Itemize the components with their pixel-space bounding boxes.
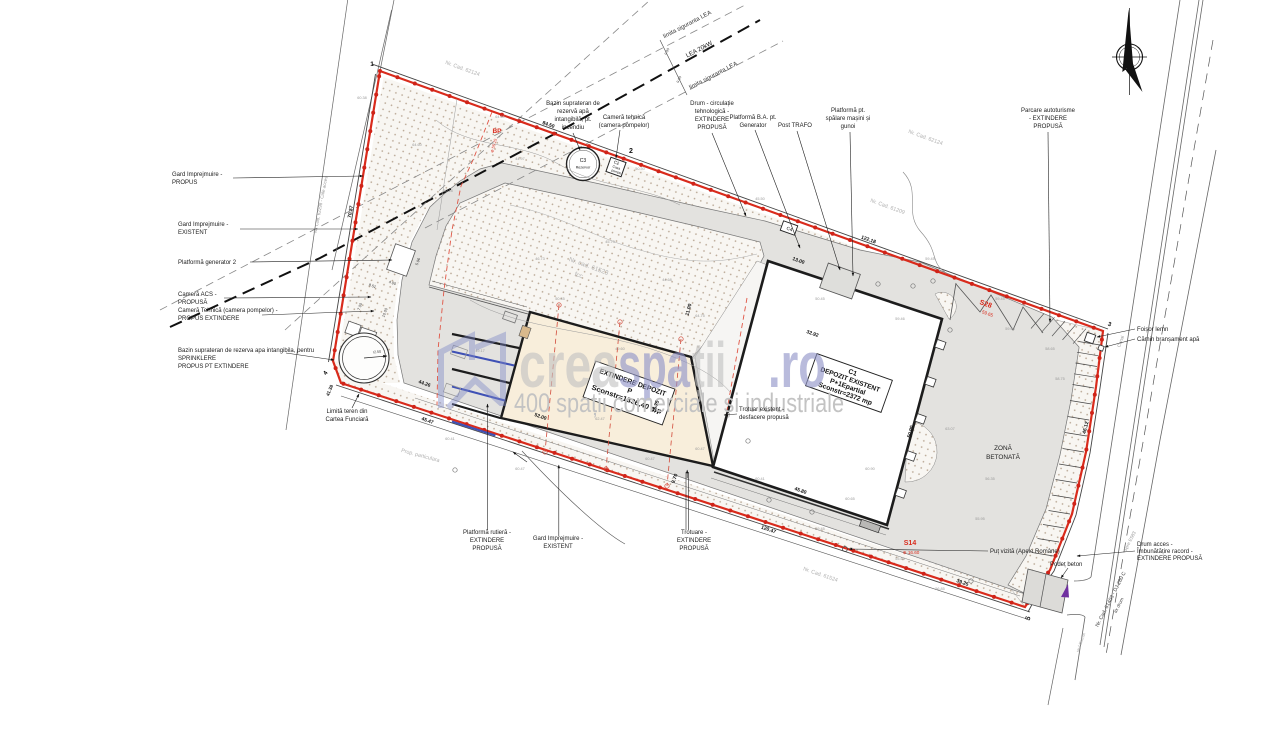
svg-text:Rezervor: Rezervor <box>576 166 591 170</box>
svg-text:60.90: 60.90 <box>865 467 875 471</box>
svg-text:44.97: 44.97 <box>515 157 525 161</box>
svg-text:58.65: 58.65 <box>1045 347 1055 351</box>
svg-text:Foișor lemn: Foișor lemn <box>1137 327 1168 333</box>
svg-text:Puț vizită (Apele Române): Puț vizită (Apele Române) <box>990 549 1060 555</box>
svg-text:BP: BP <box>492 128 502 135</box>
svg-text:Cartea Funciară: Cartea Funciară <box>325 417 369 423</box>
svg-text:incendiu: incendiu <box>562 125 584 131</box>
svg-text:PROPUSĂ: PROPUSĂ <box>697 124 726 131</box>
svg-text:45.50: 45.50 <box>755 197 765 201</box>
svg-text:50.18: 50.18 <box>443 189 453 193</box>
svg-text:intangibilă, pt.: intangibilă, pt. <box>554 117 591 123</box>
svg-text:64.60: 64.60 <box>495 115 505 119</box>
svg-text:ZONĂ: ZONĂ <box>994 443 1012 452</box>
svg-text:400 spații comerciale și indus: 400 spații comerciale și industriale <box>514 388 844 418</box>
svg-text:56.35: 56.35 <box>985 477 995 481</box>
svg-text:Drum acces -: Drum acces - <box>1137 542 1173 548</box>
svg-text:- EXTINDERE: - EXTINDERE <box>1029 116 1067 122</box>
svg-text:PROPUS PT EXTINDERE: PROPUS PT EXTINDERE <box>178 364 249 370</box>
svg-text:60.65: 60.65 <box>845 497 855 501</box>
svg-text:EXTINDERE PROPUSĂ: EXTINDERE PROPUSĂ <box>1137 555 1202 562</box>
svg-text:Platformă generator 2: Platformă generator 2 <box>178 260 237 266</box>
svg-text:S14: S14 <box>904 540 917 547</box>
svg-text:58.75: 58.75 <box>1055 377 1065 381</box>
svg-text:45.73: 45.73 <box>605 240 615 244</box>
svg-text:spălare mașini și: spălare mașini și <box>826 116 871 122</box>
svg-text:50.50: 50.50 <box>635 167 645 171</box>
svg-text:r2.50: r2.50 <box>373 350 382 355</box>
svg-text:60.41: 60.41 <box>445 437 455 441</box>
svg-text:55.65: 55.65 <box>895 557 905 561</box>
svg-text:60.47: 60.47 <box>695 447 705 451</box>
svg-text:63.07: 63.07 <box>945 427 955 431</box>
svg-text:C3: C3 <box>580 158 587 164</box>
svg-text:rezervă apă: rezervă apă <box>557 109 589 115</box>
svg-text:Platformă rutieră -: Platformă rutieră - <box>463 530 511 536</box>
svg-text:BETONATĂ: BETONATĂ <box>986 452 1021 461</box>
svg-text:60.47: 60.47 <box>515 467 525 471</box>
svg-text:Podeț beton: Podeț beton <box>1050 562 1082 568</box>
svg-text:desfacere propusă: desfacere propusă <box>739 415 789 421</box>
svg-text:Cameră tehnică: Cameră tehnică <box>603 115 646 121</box>
svg-text:EXTINDERE: EXTINDERE <box>695 117 729 123</box>
svg-text:Bazin suprateran de: Bazin suprateran de <box>546 101 600 107</box>
svg-text:Bazin suprateran de rezerva ap: Bazin suprateran de rezerva apa intangib… <box>178 348 314 354</box>
svg-text:SPRINKLERE: SPRINKLERE <box>178 356 216 362</box>
svg-text:Gard Imprejmuire -: Gard Imprejmuire - <box>172 172 222 178</box>
svg-text:60.47: 60.47 <box>645 457 655 461</box>
svg-text:EXTINDERE: EXTINDERE <box>470 538 504 544</box>
svg-text:PROPUSĂ: PROPUSĂ <box>679 545 708 552</box>
svg-text:Gard Imprejmuire -: Gard Imprejmuire - <box>533 536 583 542</box>
svg-text:Limită teren din: Limită teren din <box>326 409 367 415</box>
svg-text:1: 1 <box>370 61 374 68</box>
svg-text:PROPUSĂ: PROPUSĂ <box>472 545 501 552</box>
svg-text:PROPUSĂ: PROPUSĂ <box>178 299 207 306</box>
svg-text:PROPUSĂ: PROPUSĂ <box>1033 123 1062 130</box>
svg-text:Generator: Generator <box>739 123 766 129</box>
svg-text:50.45: 50.45 <box>815 297 825 301</box>
svg-text:2: 2 <box>629 148 633 155</box>
svg-text:46.73: 46.73 <box>535 257 545 261</box>
svg-text:59.45: 59.45 <box>925 257 935 261</box>
svg-text:(camera pompelor): (camera pompelor) <box>599 123 650 129</box>
svg-text:EXTINDERE: EXTINDERE <box>677 538 711 544</box>
svg-text:60.38: 60.38 <box>357 96 367 100</box>
svg-text:Drum - circulație: Drum - circulație <box>690 101 734 107</box>
svg-text:PROPUS: PROPUS <box>172 180 197 186</box>
svg-text:56.85: 56.85 <box>935 587 945 591</box>
svg-text:tehnologică -: tehnologică - <box>695 109 729 115</box>
svg-text:Post TRAFO: Post TRAFO <box>778 123 812 129</box>
svg-text:44.68: 44.68 <box>662 278 672 282</box>
svg-text:59.65: 59.65 <box>1005 327 1015 331</box>
svg-text:Cameră ACS -: Cameră ACS - <box>178 292 217 298</box>
svg-text:Cameră Tehnică (camera pompelo: Cameră Tehnică (camera pompelor) - <box>178 308 278 314</box>
svg-text:50.45: 50.45 <box>555 297 565 301</box>
svg-text:EXISTENT: EXISTENT <box>178 230 208 236</box>
svg-text:59.45: 59.45 <box>815 527 825 531</box>
svg-text:⊕ 16.60: ⊕ 16.60 <box>903 550 920 555</box>
svg-text:Platformă B.A. pt.: Platformă B.A. pt. <box>729 115 776 121</box>
svg-text:Cămin branșament apă: Cămin branșament apă <box>1137 337 1200 343</box>
svg-text:49.17: 49.17 <box>475 349 485 353</box>
svg-text:gunoi: gunoi <box>841 124 856 130</box>
svg-text:Trotuare -: Trotuare - <box>681 530 707 536</box>
svg-text:49.60: 49.60 <box>615 347 625 351</box>
svg-text:Parcare autoturisme: Parcare autoturisme <box>1021 108 1076 114</box>
svg-text:62.47: 62.47 <box>595 417 605 421</box>
svg-text:55.95: 55.95 <box>975 517 985 521</box>
svg-text:64.60: 64.60 <box>412 143 422 147</box>
svg-text:59.45: 59.45 <box>995 297 1005 301</box>
svg-text:64.75: 64.75 <box>695 314 705 318</box>
svg-text:60.41: 60.41 <box>755 477 765 481</box>
svg-text:Gard Imprejmuire -: Gard Imprejmuire - <box>178 222 228 228</box>
svg-text:Îmbunătățire racord -: Îmbunătățire racord - <box>1136 548 1193 555</box>
svg-text:PROPUS EXTINDERE: PROPUS EXTINDERE <box>178 316 239 322</box>
svg-text:59.46: 59.46 <box>895 317 905 321</box>
svg-text:Platformă pt.: Platformă pt. <box>831 108 865 114</box>
svg-text:Trotuar existent -: Trotuar existent - <box>739 407 784 413</box>
svg-text:EXISTENT: EXISTENT <box>543 544 573 550</box>
